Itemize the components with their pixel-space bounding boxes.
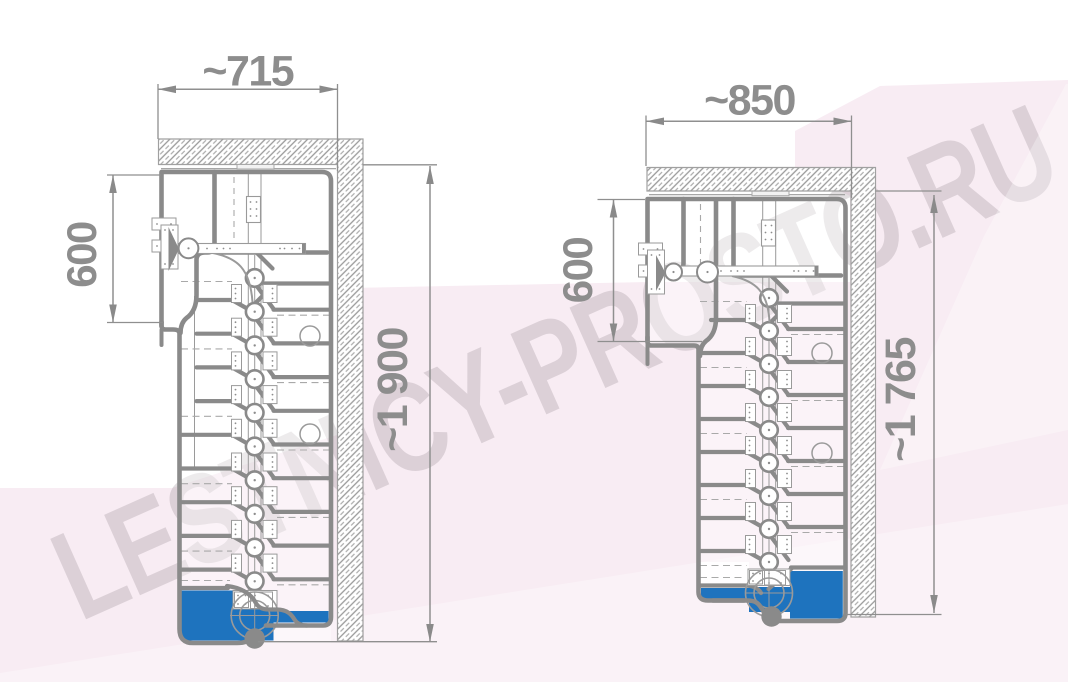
svg-text:~1 900: ~1 900 [369, 328, 417, 452]
svg-text:~1 765: ~1 765 [877, 338, 925, 462]
svg-text:600: 600 [58, 222, 105, 288]
svg-text:~850: ~850 [704, 77, 795, 125]
svg-text:600: 600 [554, 238, 601, 304]
svg-text:~715: ~715 [202, 48, 293, 96]
